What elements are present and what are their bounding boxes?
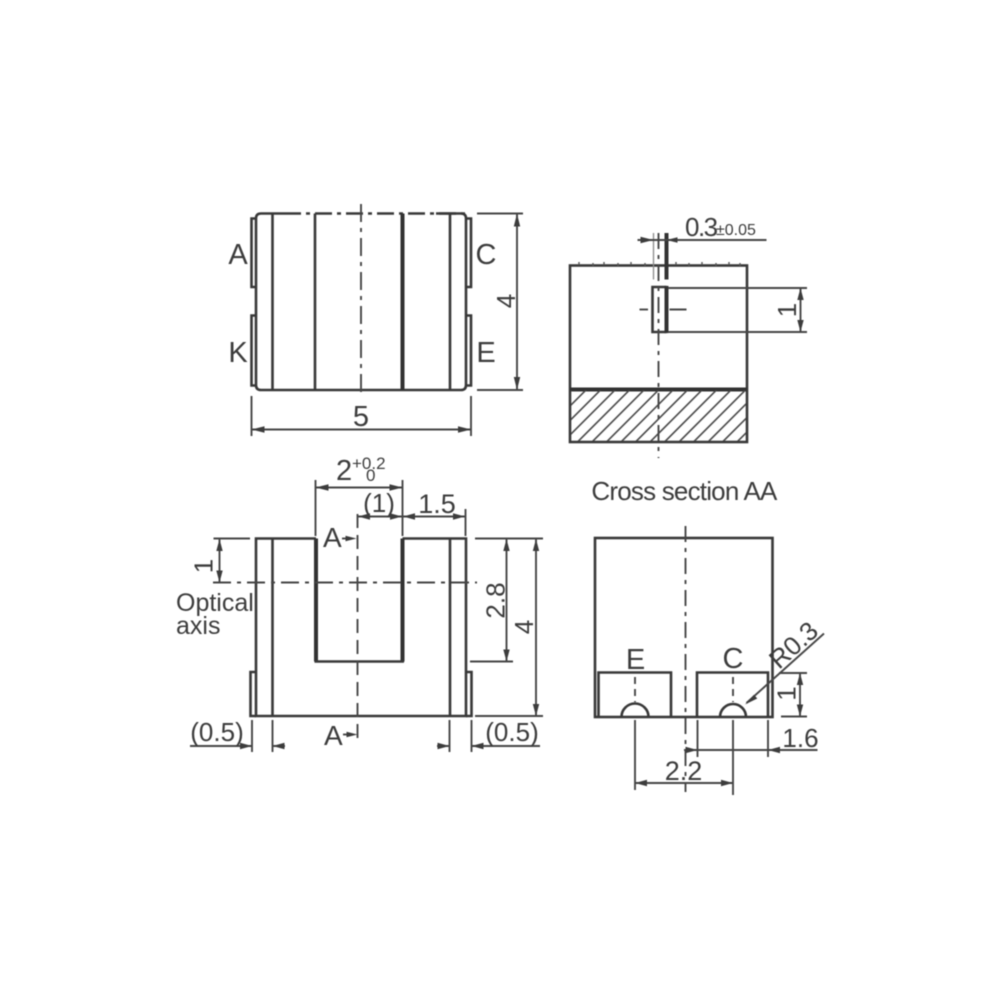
svg-text:1.5: 1.5 [418,489,456,519]
svg-text:axis: axis [176,612,220,640]
svg-text:1: 1 [189,559,219,573]
svg-text:A: A [324,720,343,751]
svg-text:A: A [228,239,248,271]
svg-text:C: C [476,239,497,271]
svg-text:C: C [723,643,744,675]
svg-text:(0.5): (0.5) [190,717,243,747]
svg-text:E: E [476,337,495,369]
svg-text:1.6: 1.6 [782,723,818,753]
svg-text:2: 2 [336,455,352,487]
svg-text:1: 1 [772,303,802,317]
svg-text:E: E [626,644,645,676]
svg-text:0.3: 0.3 [685,212,718,242]
svg-text:(0.5): (0.5) [485,717,538,747]
svg-text:2.2: 2.2 [665,756,703,786]
svg-text:A: A [323,522,342,553]
svg-text:(1): (1) [363,488,395,518]
svg-text:±0.05: ±0.05 [716,222,756,239]
svg-text:5: 5 [353,401,369,433]
svg-text:2.8: 2.8 [481,582,511,618]
svg-text:K: K [228,337,248,369]
svg-text:4: 4 [491,294,521,308]
svg-text:0: 0 [366,466,375,485]
svg-text:1: 1 [772,686,802,700]
svg-text:Cross section AA: Cross section AA [591,476,778,506]
svg-text:4: 4 [509,620,539,634]
